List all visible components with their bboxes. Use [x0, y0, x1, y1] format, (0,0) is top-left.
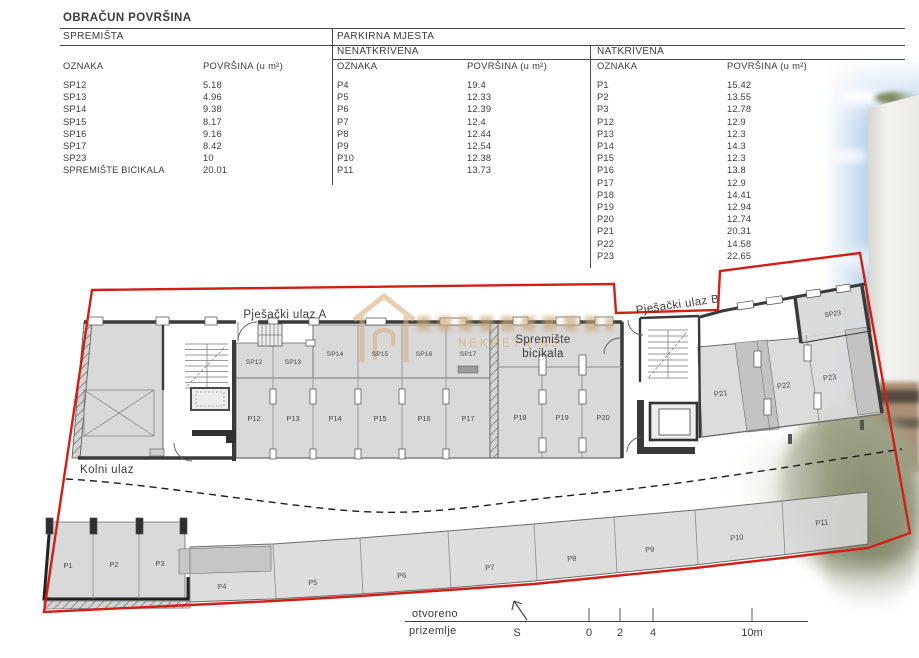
row-oznaka: P20: [597, 214, 614, 224]
plan-label-p1: P1: [63, 561, 72, 570]
plan-label-p21: P21: [713, 388, 727, 399]
table-vrule-2: [590, 45, 591, 268]
row-oznaka: P23: [597, 251, 614, 261]
plan-fills: [44, 284, 882, 602]
north-arrow-icon: [512, 601, 527, 620]
row-povrsina: 20.31: [727, 226, 751, 236]
row-oznaka: P9: [337, 141, 349, 151]
row-oznaka: P10: [337, 153, 354, 163]
col-oznaka-2: OZNAKA: [337, 60, 377, 71]
scale-tick-0: 0: [586, 627, 592, 639]
row-povrsina: 13.55: [727, 92, 751, 102]
row-povrsina: 19.4: [467, 80, 486, 90]
p4-canopy: [179, 546, 271, 574]
header-natkrivena: NATKRIVENA: [597, 46, 664, 57]
row-povrsina: 12.39: [467, 104, 491, 114]
entrance-a-detail: [238, 322, 282, 346]
row-oznaka: P16: [597, 165, 614, 175]
plan-label-sp16: SP16: [416, 351, 433, 358]
row-povrsina: 9.16: [203, 129, 222, 139]
row-povrsina: 8.17: [203, 117, 222, 127]
row-povrsina: 14.58: [727, 239, 751, 249]
plan-label-p15: P15: [373, 414, 386, 423]
row-oznaka: P22: [597, 239, 614, 249]
col-povrsina-2: POVRŠINA (u m²): [467, 60, 547, 71]
plan-label-sp15: SP15: [372, 351, 389, 358]
col-oznaka-3: OZNAKA: [597, 60, 637, 71]
plan-label-p10: P10: [730, 532, 744, 542]
plan-label-p22: P22: [776, 380, 790, 391]
plan-label-p6: P6: [397, 571, 407, 581]
legend-north-label: S: [513, 627, 520, 639]
row-oznaka: P14: [597, 141, 614, 151]
row-oznaka: P19: [597, 202, 614, 212]
row-oznaka: P1: [597, 80, 609, 90]
row-oznaka: P2: [597, 92, 609, 102]
row-oznaka: P21: [597, 226, 614, 236]
col-povrsina-1: POVRŠINA (u m²): [203, 60, 283, 71]
plan-label-p2: P2: [109, 560, 118, 569]
row-oznaka: P15: [597, 153, 614, 163]
entrance-b-label: Pješački ulaz B: [635, 293, 720, 317]
plan-label-sp12: SP12: [246, 359, 263, 366]
plan-label-p20: P20: [596, 413, 609, 422]
row-povrsina: 12.44: [467, 129, 491, 139]
header-nenatkrivena: NENATKRIVENA: [337, 46, 419, 57]
scale-tick-10m: 10m: [741, 627, 762, 639]
row-oznaka: P18: [597, 190, 614, 200]
row-povrsina: 9.38: [203, 104, 222, 114]
table-spremista-rows: SP125.18SP134.96SP149.38SP158.17SP169.16…: [63, 80, 333, 190]
plan-label-sp13: SP13: [285, 359, 302, 366]
row-povrsina: 12.54: [467, 141, 491, 151]
plan-label-p7: P7: [485, 563, 495, 573]
row-oznaka: P3: [597, 104, 609, 114]
legend: otvoreno prizemlje S 0 2 4 10m: [405, 601, 808, 639]
row-oznaka: SP23: [63, 153, 87, 163]
legend-otvoreno: otvoreno: [412, 608, 458, 620]
row-oznaka: SP14: [63, 104, 87, 114]
row-povrsina: 12.38: [467, 153, 491, 163]
watermark-blurred-name: [417, 316, 613, 331]
col-povrsina-3: POVRŠINA (u m²): [727, 60, 807, 71]
row-oznaka: P12: [597, 117, 614, 127]
row-oznaka: SP16: [63, 129, 87, 139]
plan-label-sp17: SP17: [460, 351, 477, 358]
table-natkrivena-rows: P115.42P213.55P312.78P1212.9P1312.3P1414…: [597, 80, 847, 270]
plan-label-p19: P19: [555, 413, 568, 422]
plan-label-p18: P18: [513, 413, 526, 422]
plan-label-p11: P11: [815, 517, 829, 527]
row-oznaka: SP17: [63, 141, 87, 151]
row-povrsina: 12.3: [727, 129, 746, 139]
row-oznaka: P6: [337, 104, 349, 114]
entrance-a-label: Pješački ulaz A: [243, 309, 326, 321]
header-parkirna: PARKIRNA MJESTA: [337, 31, 434, 42]
row-oznaka: P13: [597, 129, 614, 139]
row-povrsina: 20.01: [203, 165, 227, 175]
row-povrsina: 5.18: [203, 80, 222, 90]
table-rule-2: [60, 45, 905, 46]
kolni-ulaz-label: Kolni ulaz: [80, 464, 134, 476]
row-oznaka: P4: [337, 80, 349, 90]
row-oznaka: SP13: [63, 92, 87, 102]
row-povrsina: 12.94: [727, 202, 751, 212]
row-oznaka: P11: [337, 165, 353, 175]
row-povrsina: 4.96: [203, 92, 222, 102]
scale-tick-2: 2: [617, 627, 623, 639]
plan-sheet: NEKRETNINE Pješački ulaz A Pješački ulaz…: [0, 0, 919, 658]
col-oznaka-1: OZNAKA: [63, 60, 103, 71]
row-povrsina: 12.33: [467, 92, 491, 102]
row-povrsina: 12.4: [467, 117, 486, 127]
bike-room-label-2: bicikala: [522, 348, 564, 360]
plan-label-p9: P9: [645, 545, 655, 555]
bike-room-label-1: Spremište: [515, 334, 570, 346]
legend-prizemlje: prizemlje: [409, 625, 457, 637]
row-oznaka: P5: [337, 92, 349, 102]
plan-label-p16: P16: [417, 414, 430, 423]
row-povrsina: 14.3: [727, 141, 746, 151]
plan-label-p17: P17: [461, 414, 474, 423]
row-oznaka: SPREMIŠTE BICIKALA: [63, 165, 165, 175]
plan-label-p5: P5: [308, 578, 318, 587]
plan-label-p12: P12: [247, 414, 260, 423]
row-povrsina: 12.3: [727, 153, 746, 163]
sp17-hatch-box: [458, 366, 478, 373]
row-povrsina: 14.41: [727, 190, 751, 200]
plan-label-p4: P4: [217, 582, 227, 591]
header-spremista: SPREMIŠTA: [63, 31, 124, 42]
row-povrsina: 10: [203, 153, 214, 163]
plan-label-p8: P8: [567, 554, 577, 564]
scale-tick-4: 4: [650, 627, 656, 639]
page-title: OBRAČUN POVRŠINA: [63, 12, 191, 24]
row-oznaka: SP15: [63, 117, 87, 127]
row-povrsina: 22.65: [727, 251, 751, 261]
plan-label-p13: P13: [286, 414, 299, 423]
row-povrsina: 13.73: [467, 165, 491, 175]
row-povrsina: 8.42: [203, 141, 222, 151]
row-oznaka: P17: [597, 178, 614, 188]
row-povrsina: 15.42: [727, 80, 751, 90]
plan-label-sp14: SP14: [327, 351, 344, 358]
plan-label-p23: P23: [822, 372, 836, 383]
row-oznaka: SP12: [63, 80, 87, 90]
row-povrsina: 13.8: [727, 165, 746, 175]
plan-label-p14: P14: [328, 414, 341, 423]
row-povrsina: 12.9: [727, 178, 746, 188]
table-nenatkrivena-rows: P419.4P512.33P612.39P712.4P812.44P912.54…: [337, 80, 587, 190]
row-oznaka: P7: [337, 117, 349, 127]
plan-label-p3: P3: [155, 559, 164, 568]
table-rule-top: [60, 28, 905, 29]
row-povrsina: 12.78: [727, 104, 751, 114]
row-povrsina: 12.9: [727, 117, 746, 127]
row-oznaka: P8: [337, 129, 349, 139]
row-povrsina: 12.74: [727, 214, 751, 224]
